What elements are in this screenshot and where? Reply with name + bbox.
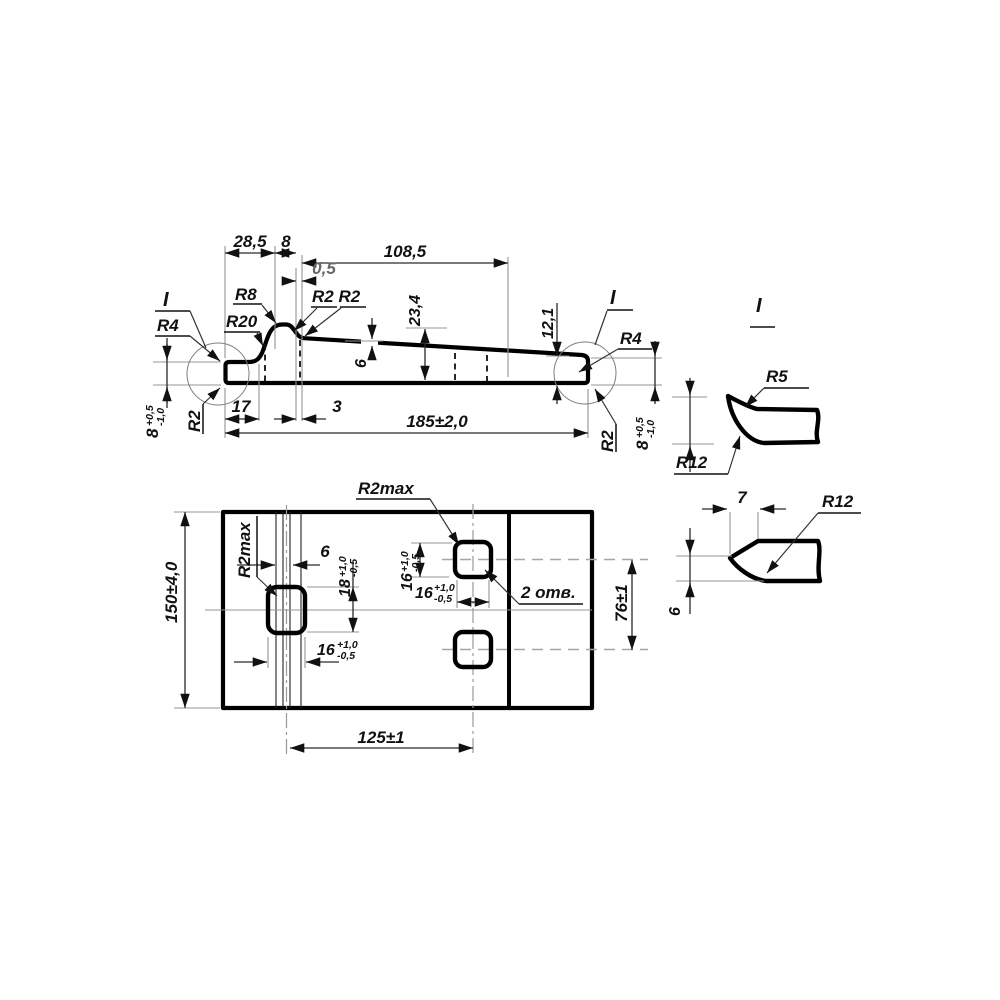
radius-r2-pair: R2 R2	[312, 287, 361, 306]
radius-r4-left: R4	[157, 316, 179, 335]
dim-150: 150±4,0	[162, 561, 181, 623]
tol16-value: 16	[317, 642, 335, 659]
tol8-value: 8	[633, 440, 652, 450]
tol18-value: 18	[337, 579, 354, 597]
dim-6-detail: 6	[667, 607, 684, 616]
holes-count-note: 2 отв.	[520, 583, 576, 602]
radius-r12-point: R12	[822, 492, 854, 511]
tol8-value: 8	[143, 428, 162, 438]
tol8-lower: -1,0	[645, 420, 657, 438]
dim-17: 17	[232, 397, 252, 416]
hole-width-tol-left: 16 +1,0 -0,5	[317, 639, 358, 662]
dim-0-5: 0,5	[312, 259, 336, 278]
radius-r8: R8	[235, 285, 257, 304]
drawing-sheet: 28,5 8 108,5 0,5 23,4 6 12,1 17 3 185±2,…	[0, 0, 1000, 1000]
detail-title: I	[756, 295, 762, 317]
radius-r2max-side: R2max	[235, 521, 254, 578]
radius-r5: R5	[766, 367, 788, 386]
tol16-lower: -0,5	[410, 554, 422, 572]
hole-width-tol-right: 16 +1,0 -0,5	[415, 582, 455, 605]
dim-108-5: 108,5	[384, 242, 427, 261]
tol16-lower: -0,5	[434, 593, 452, 605]
radius-r20: R20	[226, 312, 258, 331]
dim-7: 7	[737, 488, 748, 507]
detail-mark-left: I	[163, 289, 169, 311]
dim-8: 8	[281, 232, 291, 251]
dim-185: 185±2,0	[406, 412, 468, 431]
dim-23-4: 23,4	[407, 295, 424, 327]
tol16-value: 16	[399, 573, 416, 591]
detail-mark-right: I	[610, 287, 616, 309]
radius-r4-right: R4	[620, 329, 642, 348]
dim-3: 3	[332, 397, 342, 416]
dim-12-1: 12,1	[540, 308, 557, 339]
tol16-lower: -0,5	[337, 650, 355, 662]
tol8-lower: -1,0	[155, 408, 167, 426]
dim-76: 76±1	[612, 584, 631, 622]
tol18-lower: -0,5	[348, 559, 360, 577]
dim-125: 125±1	[357, 728, 404, 747]
radius-r2max-top: R2max	[358, 479, 415, 498]
tol16-value: 16	[415, 585, 433, 602]
technical-drawing: 28,5 8 108,5 0,5 23,4 6 12,1 17 3 185±2,…	[0, 0, 1000, 1000]
dim-6-plan: 6	[320, 542, 330, 561]
radius-r2-left: R2	[185, 410, 204, 432]
radius-r2-right: R2	[598, 430, 617, 452]
dim-6-side: 6	[353, 359, 370, 368]
radius-r12-hook: R12	[676, 453, 708, 472]
dim-28-5: 28,5	[232, 232, 267, 251]
